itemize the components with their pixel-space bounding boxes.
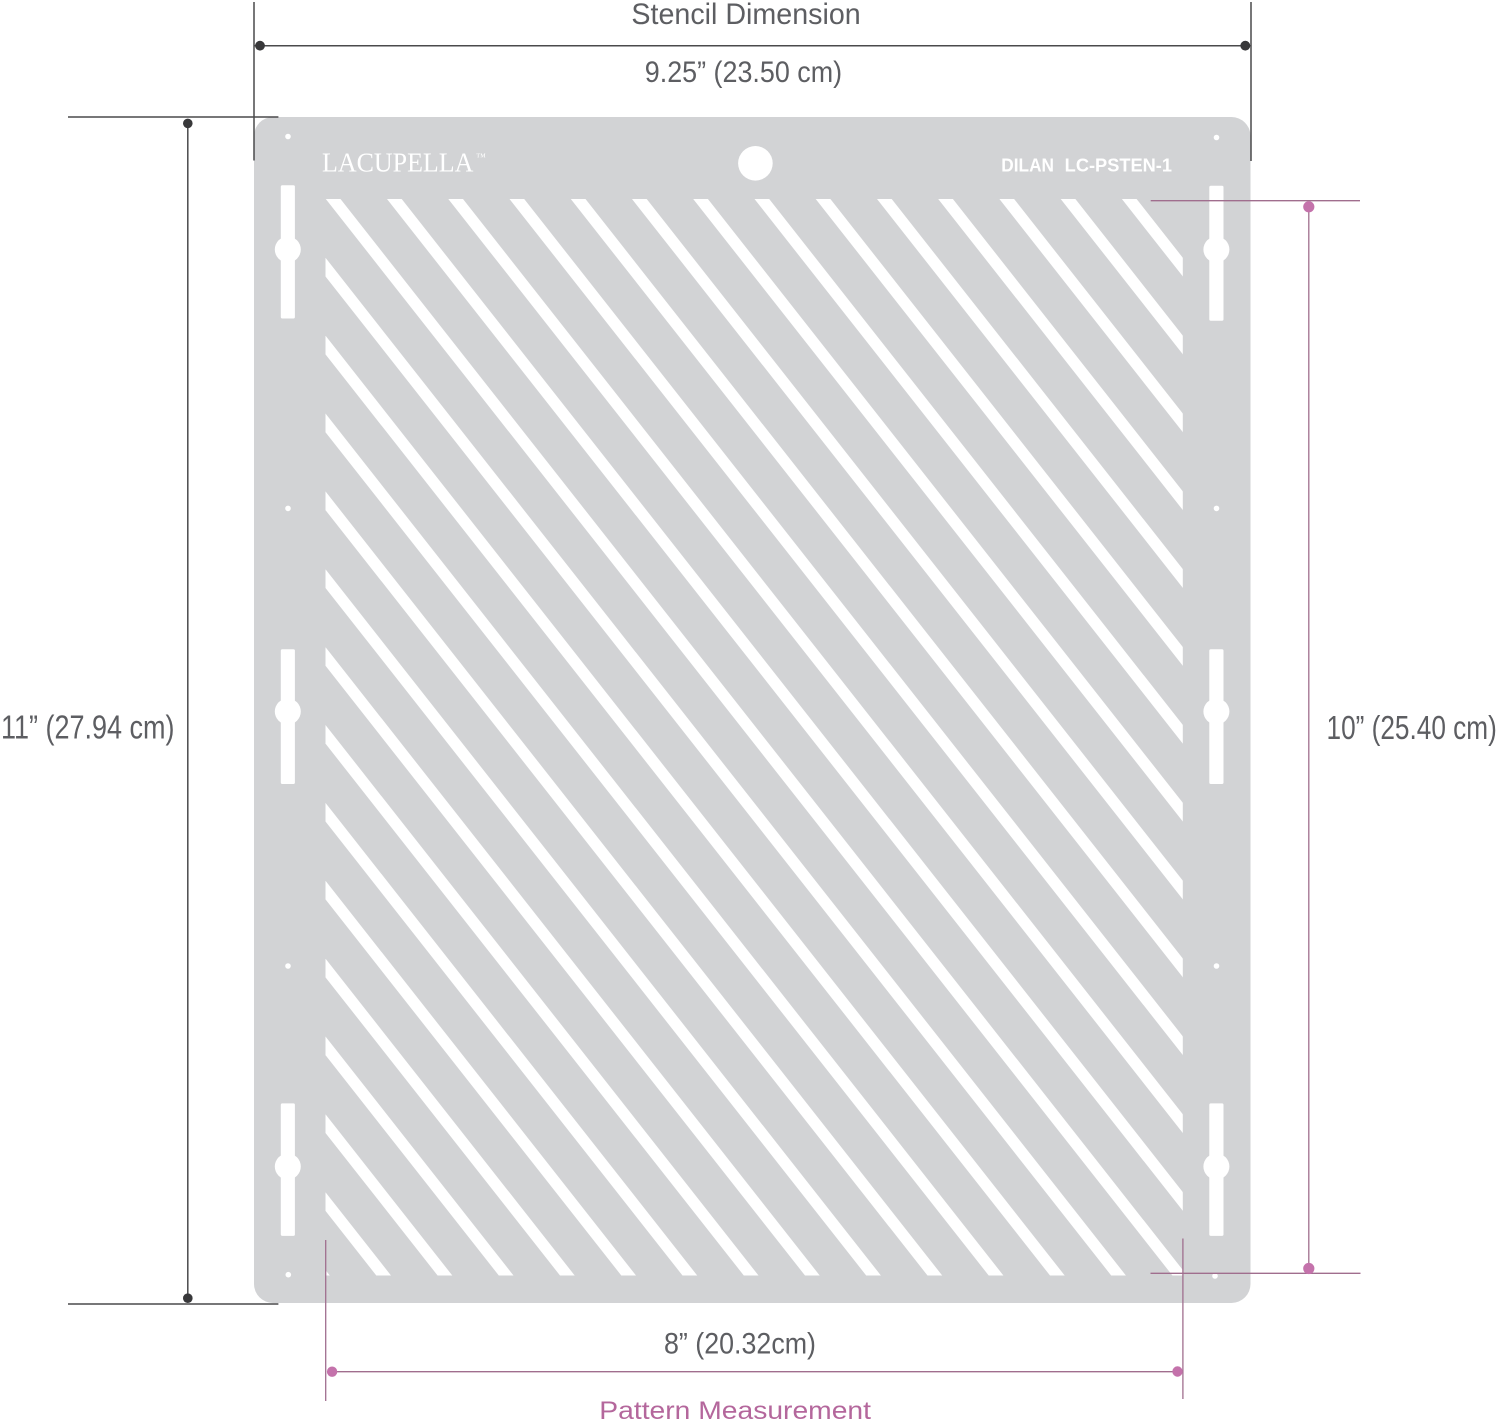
svg-text:DILAN: DILAN (1001, 155, 1054, 175)
svg-text:LACUPELLA: LACUPELLA (322, 147, 474, 178)
svg-text:9.25” (23.50 cm): 9.25” (23.50 cm) (645, 56, 842, 89)
svg-text:Stencil Dimension: Stencil Dimension (631, 0, 860, 31)
svg-text:8” (20.32cm): 8” (20.32cm) (664, 1328, 816, 1361)
svg-text:10” (25.40 cm): 10” (25.40 cm) (1327, 709, 1497, 746)
svg-text:LC-PSTEN-1: LC-PSTEN-1 (1065, 155, 1172, 175)
svg-text:11” (27.94 cm): 11” (27.94 cm) (1, 709, 175, 746)
svg-text:Pattern Measurement: Pattern Measurement (599, 1398, 871, 1425)
svg-text:™: ™ (476, 152, 486, 163)
